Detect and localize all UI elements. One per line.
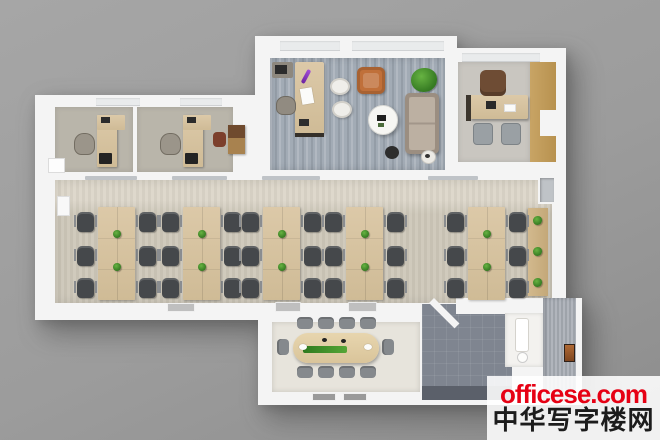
open-office-doorway: [538, 176, 556, 204]
desk-plant: [278, 230, 286, 238]
office-chair: [447, 246, 464, 266]
office-chair: [387, 278, 404, 298]
meeting-chair: [360, 317, 376, 329]
sofa: [405, 93, 439, 154]
printer: [185, 153, 198, 164]
office-chair: [77, 278, 94, 298]
counter-plant: [533, 216, 542, 225]
guest-chair: [473, 123, 493, 145]
window: [462, 53, 540, 62]
guest-chair: [330, 78, 350, 95]
meeting-chair: [382, 339, 394, 355]
guest-chair: [332, 101, 352, 118]
low-cabinet: [312, 393, 336, 401]
guest-chair: [213, 132, 226, 147]
watermark-site-name: 中华写字楼网: [492, 408, 654, 435]
wall-shelf: [540, 110, 566, 136]
guest-chair: [501, 123, 521, 145]
office-chair: [160, 133, 181, 155]
window: [96, 98, 140, 106]
glass-partition: [172, 176, 227, 180]
desk-plant: [278, 263, 286, 271]
meeting-chair: [277, 339, 289, 355]
corridor-top-wall: [456, 298, 553, 314]
papers: [300, 87, 315, 105]
desk-plant: [361, 263, 369, 271]
office-chair: [242, 278, 259, 298]
desk-bench: [346, 207, 383, 300]
office-chair: [304, 212, 321, 232]
table-item: [322, 338, 327, 342]
office-chair: [387, 246, 404, 266]
office-chair: [509, 278, 526, 298]
office-chair: [387, 212, 404, 232]
coffee-table: [368, 105, 398, 135]
office-floorplan-render: officese.com 中华写字楼网: [0, 0, 660, 440]
office-chair: [74, 133, 95, 155]
side-cabinet: [272, 62, 293, 78]
office-chair: [139, 246, 156, 266]
potted-plant: [411, 68, 437, 92]
desk-plant: [483, 263, 491, 271]
pen: [301, 69, 312, 84]
office-chair: [242, 246, 259, 266]
office-chair: [447, 278, 464, 298]
meeting-chair: [297, 366, 313, 378]
desk-item: [101, 117, 110, 123]
counter-plant: [533, 278, 542, 287]
meeting-chair: [339, 317, 355, 329]
desk-plant: [198, 230, 206, 238]
office-chair: [304, 246, 321, 266]
desk-plant: [361, 230, 369, 238]
office-chair: [325, 212, 342, 232]
low-cabinet: [343, 393, 367, 401]
bathroom-counter: [515, 318, 529, 352]
desk-plant: [113, 263, 121, 271]
stool: [421, 150, 436, 164]
radiator: [57, 196, 70, 216]
desk-bench: [98, 207, 135, 300]
low-cabinet: [275, 302, 301, 312]
desk-plant: [198, 263, 206, 271]
manager-chair: [480, 70, 506, 96]
glass-partition: [262, 176, 320, 180]
executive-chair: [276, 96, 296, 115]
office-chair: [162, 246, 179, 266]
office-chair: [139, 278, 156, 298]
printer: [99, 153, 112, 164]
office-chair: [139, 212, 156, 232]
desk-item: [187, 117, 196, 123]
watermark: officese.com 中华写字楼网: [487, 376, 660, 440]
window: [352, 41, 444, 51]
glass-partition: [428, 176, 478, 180]
stool: [385, 146, 399, 159]
desk-bench: [263, 207, 300, 300]
office-chair: [162, 212, 179, 232]
plate: [299, 344, 307, 350]
counter-plant: [533, 247, 542, 256]
desk-bench: [468, 207, 505, 300]
office-chair: [509, 246, 526, 266]
executive-desk: [295, 62, 324, 134]
window: [180, 98, 222, 106]
desk-plant: [483, 230, 491, 238]
office-chair: [77, 212, 94, 232]
office-chair: [447, 212, 464, 232]
desk-plant: [113, 230, 121, 238]
office-chair: [304, 278, 321, 298]
building: [0, 0, 660, 440]
papers: [504, 104, 516, 112]
wall-picture: [564, 344, 575, 362]
bathroom-sink: [517, 352, 528, 363]
manager-desk: [470, 95, 528, 119]
storage-cabinet: [228, 125, 245, 154]
office-chair: [325, 246, 342, 266]
office-chair: [77, 246, 94, 266]
window-sill: [48, 158, 65, 173]
meeting-chair: [360, 366, 376, 378]
table-item: [341, 339, 346, 343]
plate: [364, 344, 372, 350]
meeting-chair: [339, 366, 355, 378]
desk-bench: [183, 207, 220, 300]
desk-phone: [299, 119, 309, 126]
office-chair: [242, 212, 259, 232]
window: [280, 41, 340, 51]
office-chair: [325, 278, 342, 298]
orange-armchair: [357, 67, 385, 94]
office-chair: [162, 278, 179, 298]
low-cabinet: [348, 302, 377, 312]
meeting-chair: [318, 317, 334, 329]
meeting-chair: [318, 366, 334, 378]
watermark-site-url: officese.com: [500, 381, 647, 408]
glass-partition: [85, 176, 137, 180]
meeting-chair: [297, 317, 313, 329]
table-plant-runner: [303, 346, 347, 353]
office-chair: [509, 212, 526, 232]
laptop: [486, 101, 496, 109]
low-cabinet: [167, 303, 195, 312]
